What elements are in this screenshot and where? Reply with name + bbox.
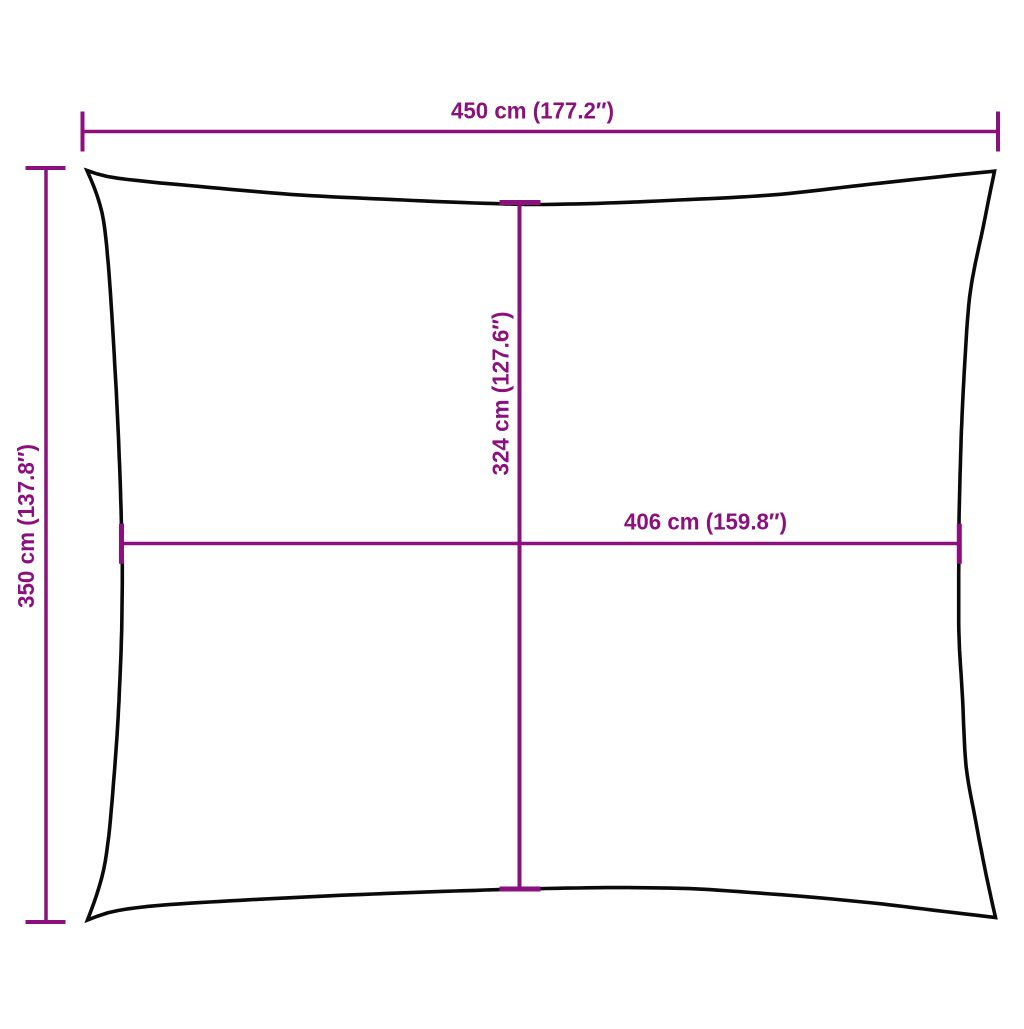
svg-text:324 cm (127.6″): 324 cm (127.6″)	[488, 312, 514, 476]
svg-text:350 cm (137.8″): 350 cm (137.8″)	[13, 444, 39, 608]
svg-text:450 cm (177.2″): 450 cm (177.2″)	[451, 97, 614, 123]
svg-text:406 cm (159.8″): 406 cm (159.8″)	[624, 509, 787, 535]
